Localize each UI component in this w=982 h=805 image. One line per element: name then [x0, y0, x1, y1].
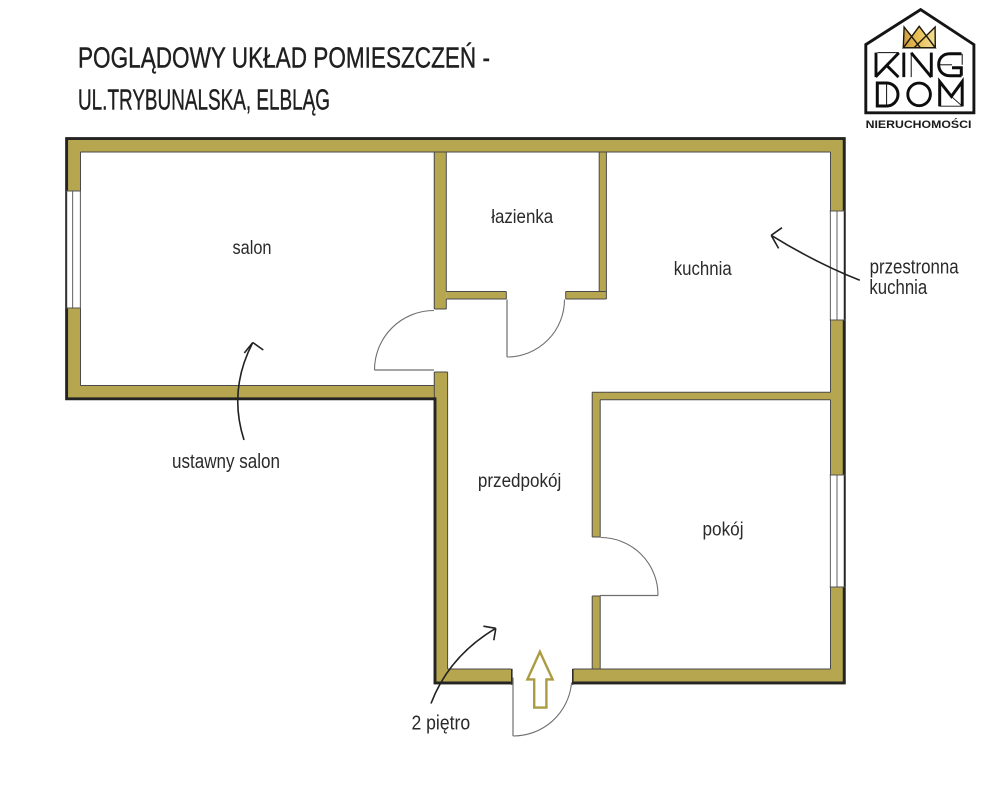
- svg-text:przestronna: przestronna: [870, 256, 960, 278]
- svg-text:kuchnia: kuchnia: [869, 277, 928, 299]
- svg-text:UL.TRYBUNALSKA, ELBLĄG: UL.TRYBUNALSKA, ELBLĄG: [78, 85, 330, 117]
- svg-text:łazienka: łazienka: [491, 207, 553, 228]
- svg-text:NIERUCHOMOŚCI: NIERUCHOMOŚCI: [866, 118, 972, 131]
- svg-text:przedpokój: przedpokój: [478, 471, 561, 492]
- svg-text:salon: salon: [233, 238, 272, 259]
- svg-text:2 piętro: 2 piętro: [412, 712, 471, 734]
- svg-text:pokój: pokój: [703, 520, 744, 541]
- svg-text:ustawny salon: ustawny salon: [172, 451, 280, 473]
- svg-text:kuchnia: kuchnia: [674, 259, 732, 280]
- svg-text:POGLĄDOWY UKŁAD POMIESZCZEŃ -: POGLĄDOWY UKŁAD POMIESZCZEŃ -: [78, 42, 490, 75]
